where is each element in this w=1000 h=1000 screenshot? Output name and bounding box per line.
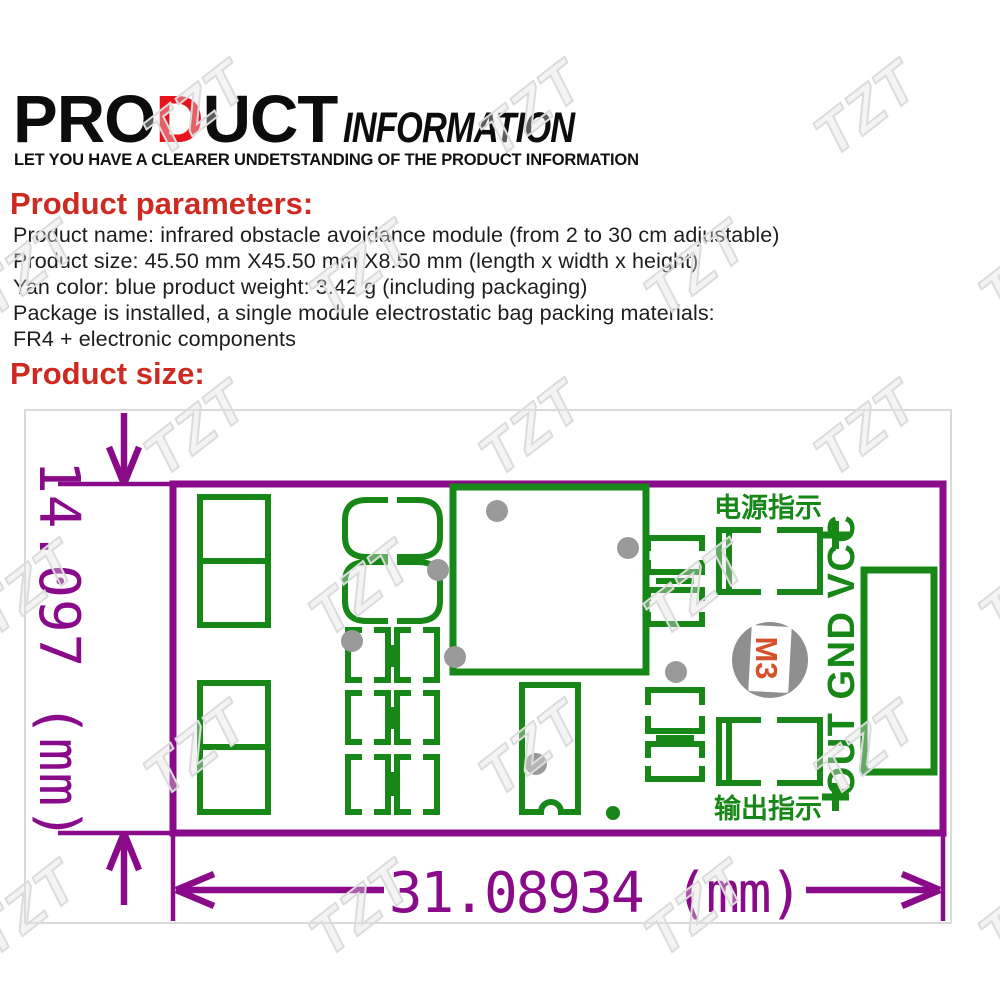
via-holes xyxy=(341,500,687,775)
silkscreen-dot xyxy=(606,806,620,820)
output-indicator-label: 输出指示 xyxy=(714,793,822,824)
height-dimension-text: 14.097 (mm) xyxy=(26,460,91,842)
diode-footprints xyxy=(648,538,702,779)
transistor-footprint xyxy=(522,685,578,812)
dimension-extension-lines xyxy=(58,484,943,921)
power-indicator-label: 电源指示 xyxy=(714,493,822,523)
terminal-block-footprints xyxy=(200,497,268,812)
pin-connector-footprint xyxy=(864,570,934,772)
capacitor-footprints xyxy=(345,500,440,621)
width-dimension-text: 31.08934 (mm) xyxy=(389,861,801,926)
mounting-hole-m3: M3 xyxy=(732,622,808,698)
pin-labels-text: OUT GND VCC xyxy=(821,514,863,797)
pcb-dimension-diagram: 14.097 (mm) 31.08934 (mm) xyxy=(0,0,1000,1000)
ic-footprint xyxy=(453,487,646,672)
smd-pad-footprints xyxy=(348,630,437,812)
mounting-hole-label: M3 xyxy=(749,636,784,679)
